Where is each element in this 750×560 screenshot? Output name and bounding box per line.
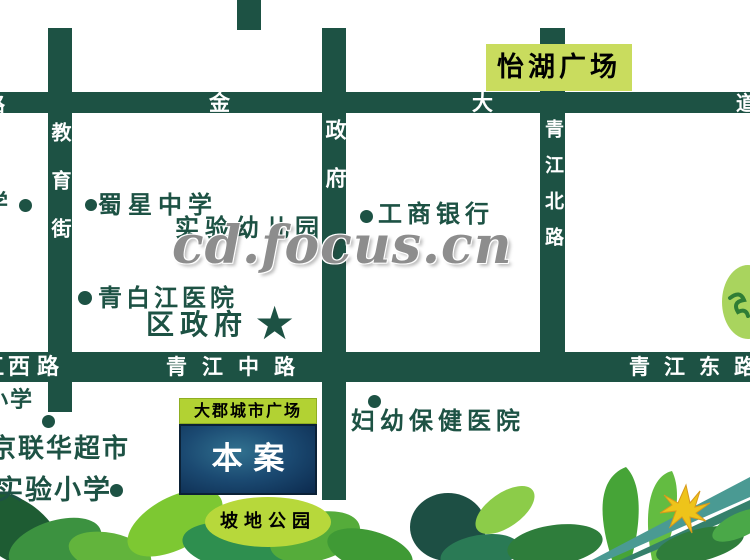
poi-bullet-icon — [19, 199, 32, 212]
road-label-west-road: 西路 — [8, 357, 66, 379]
poi-bottom-school-partial: 小学 — [0, 390, 34, 412]
tree-icon — [722, 264, 750, 340]
road-label-mid-west-partial: 江 — [0, 357, 4, 379]
location-map: 路 金 大 道 教育街 政府 青江北路 江 西路 青江中路 青江东路 学 蜀星中… — [0, 0, 750, 560]
road-label-top-left-partial: 路 — [0, 94, 5, 114]
poi-district-government: 区政府 — [146, 311, 248, 339]
site-marker-box: 本 案 — [179, 424, 317, 495]
road-label-qingjiang-north: 青江北路 — [543, 119, 562, 263]
road-label-jin: 金 — [209, 93, 230, 114]
road-label-top-right-partial: 道 — [736, 93, 750, 113]
road-stub-top — [237, 0, 261, 30]
road-label-jiaoyu-street: 教育街 — [50, 122, 70, 266]
poi-lianhua-supermarket: 京联华超市 — [0, 436, 130, 462]
road-label-qingjiang-middle: 青江中路 — [166, 357, 310, 378]
poi-qingbaijiang-hospital: 青白江医院 — [98, 286, 238, 310]
road-label-qingjiang-east: 青江东路 — [629, 357, 750, 378]
poi-edge-school-partial: 学 — [0, 193, 8, 215]
watermark-text: cd.focus.cn — [172, 220, 513, 272]
road-label-da: 大 — [472, 93, 493, 114]
project-name-sign: 大郡城市广场 — [179, 398, 317, 424]
road-label-government: 政府 — [324, 119, 345, 215]
poi-bullet-icon — [78, 291, 92, 305]
district-government-star-icon: ★ — [254, 300, 295, 346]
poi-bullet-icon — [85, 199, 97, 211]
road-top-horizontal — [0, 92, 750, 113]
poi-experimental-primary-school: 实验小学 — [0, 477, 112, 504]
yihu-square-sign: 怡湖广场 — [486, 44, 632, 91]
park-sign: 坡地公园 — [205, 497, 331, 547]
